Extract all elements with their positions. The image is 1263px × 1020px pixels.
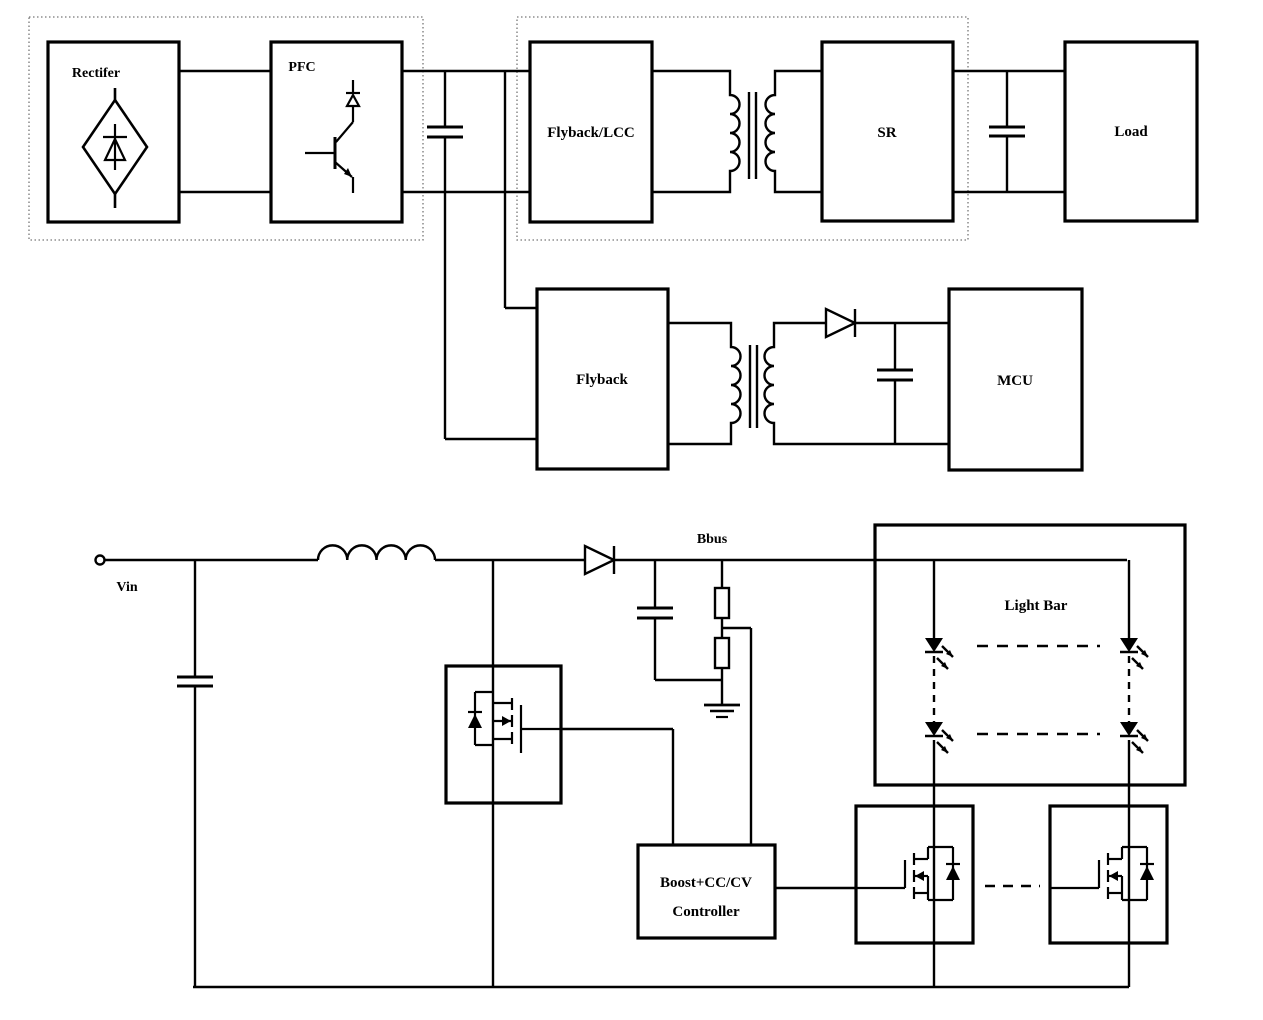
boost-mosfet-icon	[468, 692, 561, 753]
circuit-diagram: Rectifer PFC Flyback/LCC SR Load Flyback…	[0, 0, 1263, 1020]
led-string-right	[1120, 560, 1148, 987]
boost-mosfet-box	[446, 666, 561, 803]
pfc-switch-icon	[305, 80, 360, 193]
string-mosfet-icon-right	[1050, 847, 1154, 900]
main-transformer-icon	[652, 71, 822, 192]
input-capacitor-icon	[177, 560, 213, 987]
front-end-dotted-outline	[29, 17, 423, 240]
gate-drive-wire	[561, 729, 673, 845]
load-label: Load	[1114, 124, 1148, 140]
boost-diode-icon	[585, 546, 614, 574]
controller-label-line1: Boost+CC/CV	[660, 875, 752, 891]
mcu-label: MCU	[997, 373, 1033, 389]
diagram-svg: Rectifer PFC Flyback/LCC SR Load Flyback…	[0, 0, 1263, 1020]
flyback-lcc-label: Flyback/LCC	[547, 125, 635, 141]
string-mosfet-icon-left	[856, 847, 960, 900]
light-bar-box	[875, 525, 1185, 785]
pfc-label: PFC	[288, 60, 315, 75]
controller-label-line2: Controller	[672, 904, 740, 920]
rectifier-label: Rectifer	[72, 66, 120, 81]
sr-label: SR	[877, 125, 896, 141]
aux-rectifier-diode-icon	[826, 309, 949, 337]
boost-controller-box	[638, 845, 775, 938]
bridge-rectifier-icon	[83, 88, 147, 208]
flyback-label: Flyback	[576, 372, 628, 388]
aux-capacitor-icon	[877, 323, 913, 444]
led-string-left	[925, 560, 953, 987]
output-capacitor-icon	[989, 71, 1025, 192]
bbus-label: Bbus	[697, 532, 728, 547]
vin-terminal-icon	[96, 556, 105, 565]
bbus-capacitor-icon	[637, 560, 722, 680]
aux-transformer-icon	[668, 323, 949, 444]
vin-label: Vin	[116, 580, 137, 595]
bus-capacitor-icon	[427, 71, 463, 439]
boost-inductor-icon	[318, 545, 435, 560]
led-driver-group	[96, 525, 1186, 987]
ground-icon	[704, 705, 740, 717]
light-bar-label: Light Bar	[1005, 598, 1068, 614]
feedback-divider-icon	[715, 560, 751, 845]
